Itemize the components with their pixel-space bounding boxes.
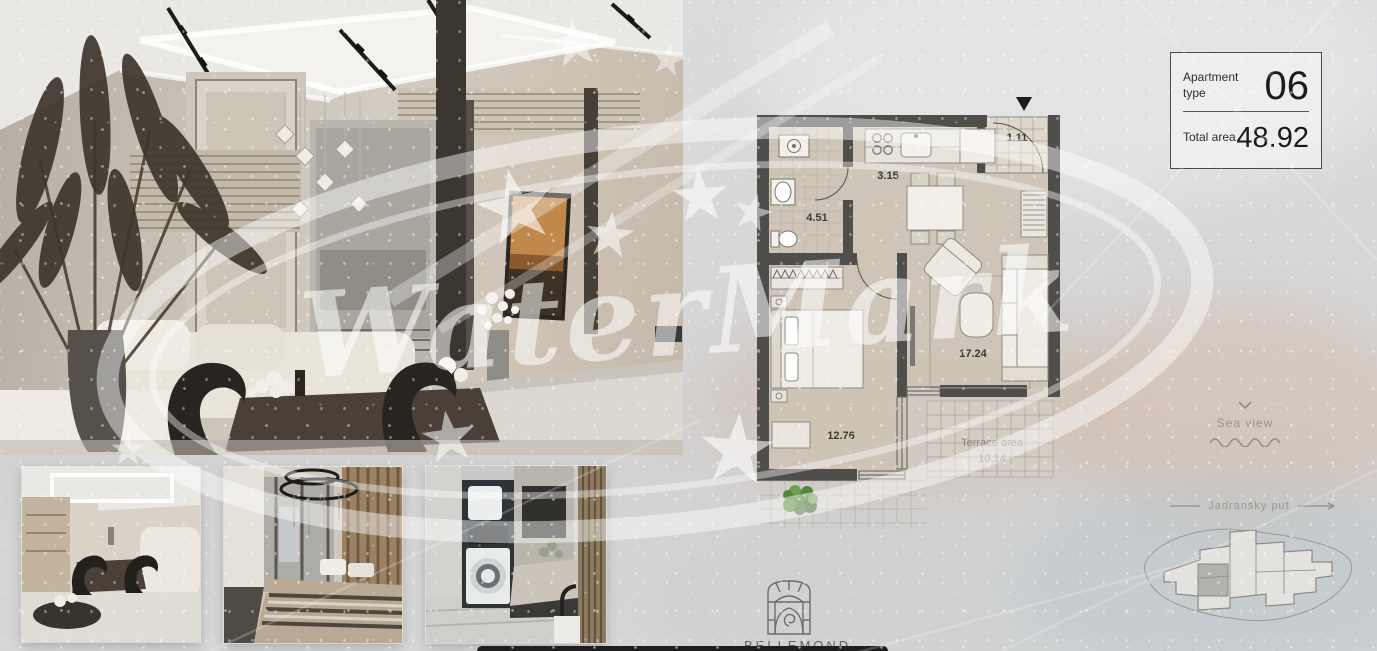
street-label: Jadransky put — [1208, 500, 1289, 512]
site-plan — [1134, 516, 1364, 634]
bottom-bar — [477, 646, 888, 651]
thumbnail-living-room[interactable] — [22, 467, 200, 642]
wall-thermostat — [655, 326, 682, 342]
garden-grid — [757, 481, 927, 529]
thumb-living-render — [22, 467, 200, 642]
thumbnail-bathroom[interactable] — [426, 466, 606, 643]
kitchen-fixtures — [865, 129, 995, 163]
sea-wave-icon — [1209, 433, 1281, 447]
apartment-type-label: Apartment type — [1183, 70, 1245, 101]
thumb-bathroom-render — [426, 466, 606, 643]
total-area-value: 48.92 — [1236, 122, 1309, 155]
brochure-page: 1.11 3.15 4.51 17.24 12.76 Terrace area … — [0, 0, 1377, 651]
street-arrow-icon — [1298, 502, 1336, 510]
chevron-down-icon — [1238, 401, 1252, 411]
wall-artwork — [503, 191, 572, 321]
brand-block: BELLEMOND — [744, 578, 834, 651]
bed — [771, 296, 863, 402]
entrance-arrow-icon — [1016, 97, 1032, 111]
terrace-area-value: 10.14 — [978, 453, 1006, 465]
sea-view-annotation: Sea view — [1195, 398, 1295, 452]
apartment-info-box: Apartment type 06 Total area 48.92 — [1170, 52, 1322, 169]
bedroom-wardrobe — [771, 267, 843, 289]
apartment-type-value: 06 — [1265, 64, 1310, 109]
area-label-entry: 1.11 — [1007, 132, 1028, 144]
coastline-wave-icon — [1156, 645, 1306, 651]
terrace-label: Terrace area — [961, 437, 1024, 449]
area-label-living: 17.24 — [959, 348, 987, 360]
street-dash-icon — [1170, 502, 1200, 510]
floor-plan: 1.11 3.15 4.51 17.24 12.76 Terrace area … — [755, 91, 1065, 533]
info-divider — [1183, 111, 1309, 112]
main-interior-photo — [0, 0, 683, 455]
area-label-kitchen: 3.15 — [877, 170, 898, 182]
site-plan-block: Jadransky put — [1128, 500, 1377, 651]
area-label-bedroom: 12.76 — [827, 430, 855, 442]
highlighted-unit — [1198, 564, 1228, 596]
bellemond-logo-icon — [762, 578, 816, 636]
bg-sea-haze2 — [640, 520, 1100, 651]
area-label-bathroom: 4.51 — [806, 212, 827, 224]
total-area-label: Total area — [1183, 130, 1236, 146]
hero-render — [0, 0, 683, 455]
hall-wardrobe — [1021, 191, 1047, 237]
thumb-bedroom-render — [224, 467, 402, 643]
bedroom-cabinet — [772, 422, 810, 448]
sea-view-label: Sea view — [1195, 416, 1295, 430]
thumbnail-bedroom[interactable] — [224, 467, 402, 643]
